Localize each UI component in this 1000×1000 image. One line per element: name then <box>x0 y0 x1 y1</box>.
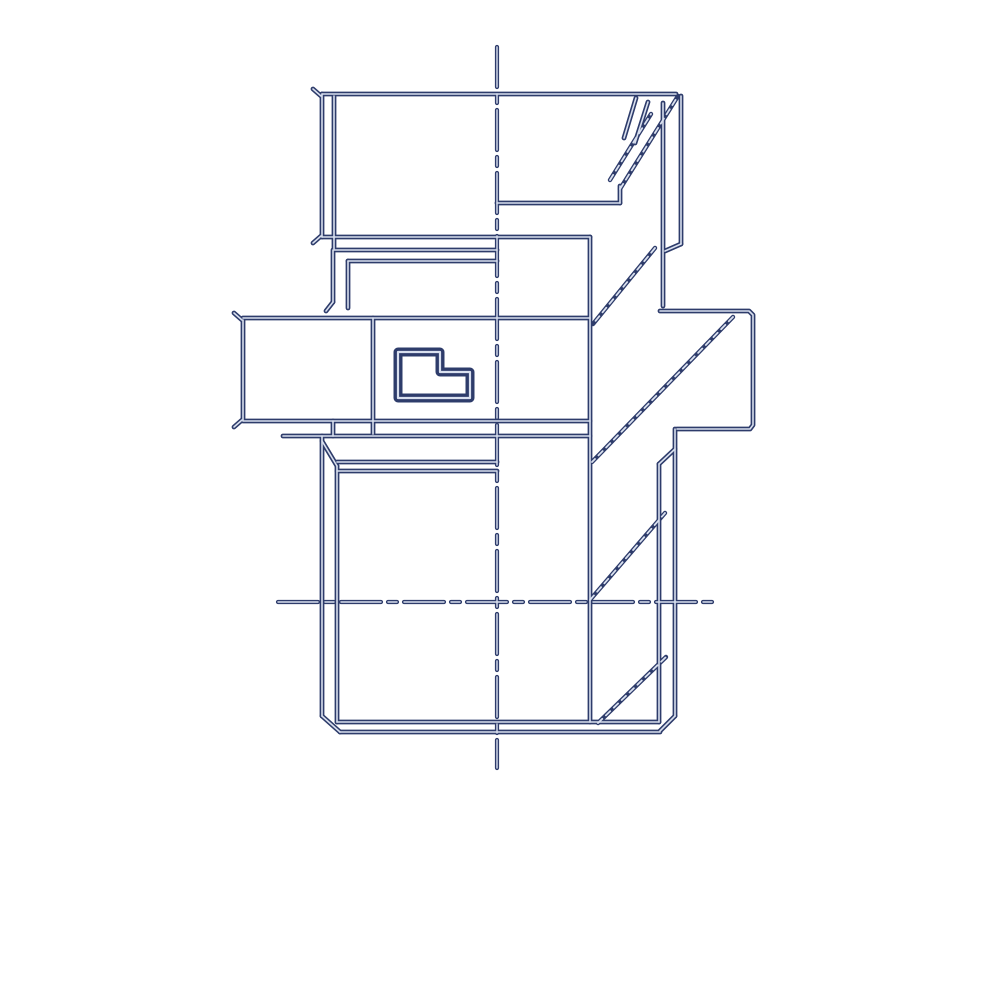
drawing-canvas <box>0 0 1000 1000</box>
nut-corner-hatch-a-highlight <box>624 98 636 138</box>
fitting-technical-drawing <box>0 0 1000 1000</box>
flange-outline <box>660 311 753 429</box>
chamfer-diagonal-bottom-highlight <box>598 657 666 723</box>
nut-chamfer-main-highlight <box>620 96 678 189</box>
flange-outline-highlight <box>660 311 753 429</box>
chamfer-diagonal-neck-highlight <box>593 248 655 324</box>
brand-glyph <box>398 352 470 398</box>
stud-bottom-chamfer-right-highlight <box>660 716 675 731</box>
